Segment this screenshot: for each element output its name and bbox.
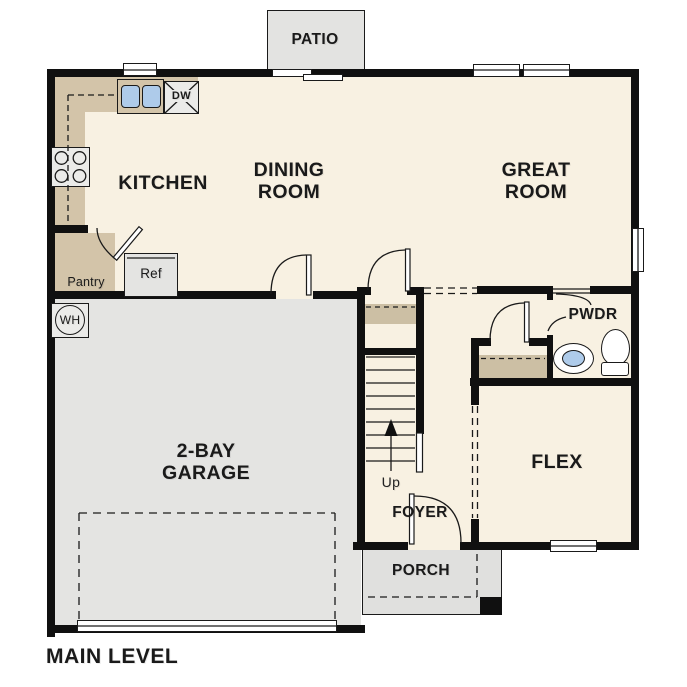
patio-slider-panel-b bbox=[303, 74, 343, 81]
great-room-label: GREAT ROOM bbox=[486, 159, 586, 203]
toilet-bowl bbox=[601, 329, 630, 365]
opening-garage-entry bbox=[276, 291, 313, 299]
water-heater-label: WH bbox=[53, 313, 87, 327]
floor-plan: PATIO KITCHEN DINING ROOM GREAT ROOM Pan… bbox=[0, 0, 687, 687]
window-great-room-1 bbox=[473, 64, 520, 77]
window-kitchen bbox=[123, 63, 157, 76]
opening-stairs-closet bbox=[371, 287, 407, 295]
foyer-label: FOYER bbox=[370, 504, 470, 522]
dishwasher-label-text: DW bbox=[171, 90, 192, 102]
dining-room-label: DINING ROOM bbox=[239, 159, 339, 203]
great-room-label-line2: ROOM bbox=[486, 181, 586, 203]
pantry-label: Pantry bbox=[51, 275, 121, 289]
porch-pillar bbox=[480, 597, 502, 615]
wall-stairs-mid bbox=[357, 348, 424, 355]
toilet-tank bbox=[601, 362, 629, 376]
opening-front-door bbox=[408, 542, 460, 550]
wall-flex-top bbox=[470, 378, 639, 386]
wall-closet-left bbox=[471, 338, 479, 405]
plan-title: MAIN LEVEL bbox=[46, 645, 266, 669]
refrigerator-label: Ref bbox=[124, 266, 178, 281]
wall-garage-right bbox=[357, 291, 365, 550]
flex-label: FLEX bbox=[507, 451, 607, 473]
wall-garage-top bbox=[47, 291, 365, 299]
wall-pantry-stub bbox=[47, 225, 88, 233]
powder-sink-basin bbox=[562, 350, 585, 367]
wall-stairs-right bbox=[416, 287, 424, 434]
dining-room-label-line2: ROOM bbox=[239, 181, 339, 203]
kitchen-label: KITCHEN bbox=[113, 172, 213, 194]
great-room-label-line1: GREAT bbox=[486, 159, 586, 181]
patio-label: PATIO bbox=[265, 31, 365, 49]
stairs-up-label: Up bbox=[370, 474, 412, 490]
sink-basin-left bbox=[121, 85, 140, 108]
sink-basin-right bbox=[142, 85, 161, 108]
window-great-room-2 bbox=[523, 64, 570, 77]
garage-door-panel bbox=[77, 620, 337, 632]
powder-closet-shelf bbox=[479, 355, 547, 379]
window-great-room-right bbox=[632, 228, 644, 272]
opening-powder-room bbox=[553, 286, 590, 294]
stove bbox=[51, 147, 90, 187]
garage-label: 2-BAY GARAGE bbox=[146, 440, 266, 484]
stairs-closet-shelf bbox=[365, 304, 417, 324]
powder-label: PWDR bbox=[543, 306, 643, 324]
wall-powder-divider bbox=[547, 335, 553, 386]
dishwasher-label: DW bbox=[164, 90, 199, 102]
dining-room-label-line1: DINING bbox=[239, 159, 339, 181]
garage-label-line2: GARAGE bbox=[146, 462, 266, 484]
opening-powder-closet bbox=[491, 338, 529, 346]
garage-label-line1: 2-BAY bbox=[146, 440, 266, 462]
window-flex bbox=[550, 540, 597, 552]
porch-label: PORCH bbox=[371, 562, 471, 580]
